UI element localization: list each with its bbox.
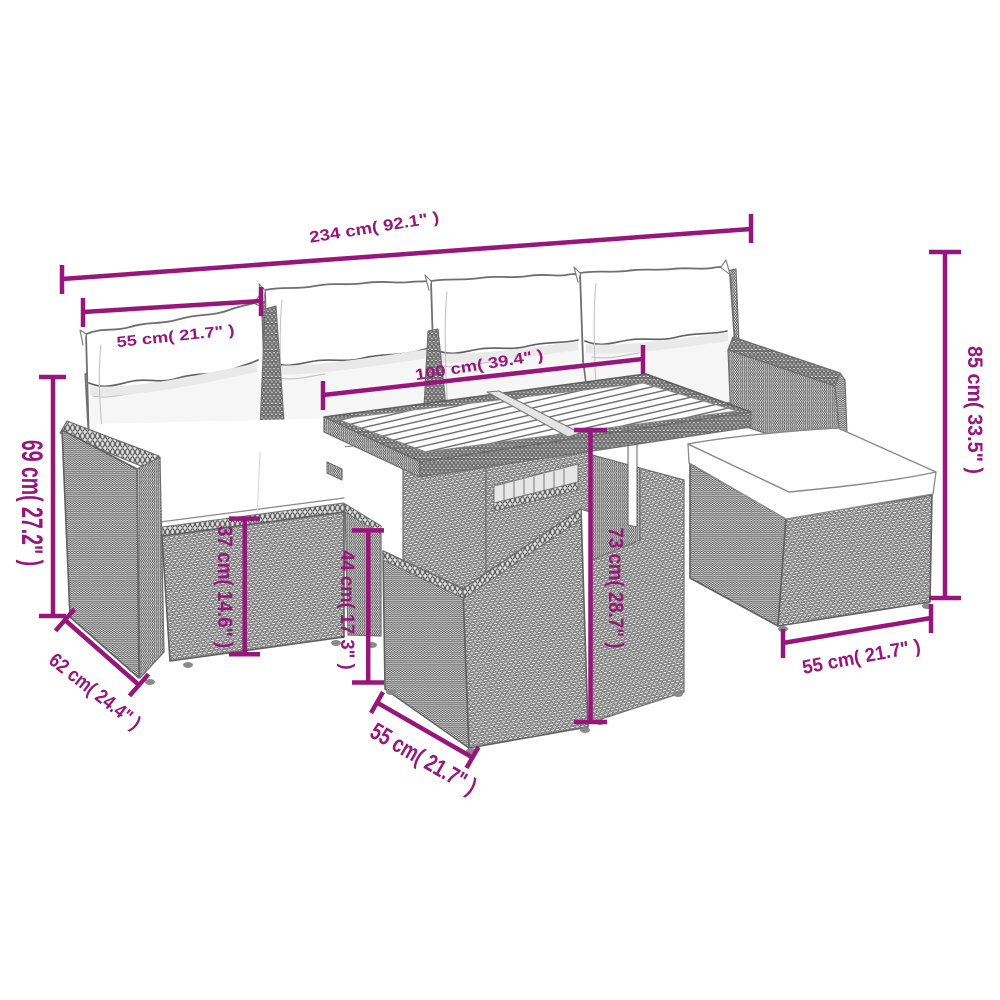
svg-text:69 cm( 27.2" ): 69 cm( 27.2" ) — [15, 440, 48, 566]
svg-text:85 cm( 33.5" ): 85 cm( 33.5" ) — [963, 346, 987, 474]
svg-text:44 cm( 17.3" ): 44 cm( 17.3" ) — [337, 550, 358, 669]
svg-text:37 cm( 14.6" ): 37 cm( 14.6" ) — [213, 526, 236, 648]
svg-text:73 cm( 28.7" ): 73 cm( 28.7" ) — [604, 528, 627, 649]
